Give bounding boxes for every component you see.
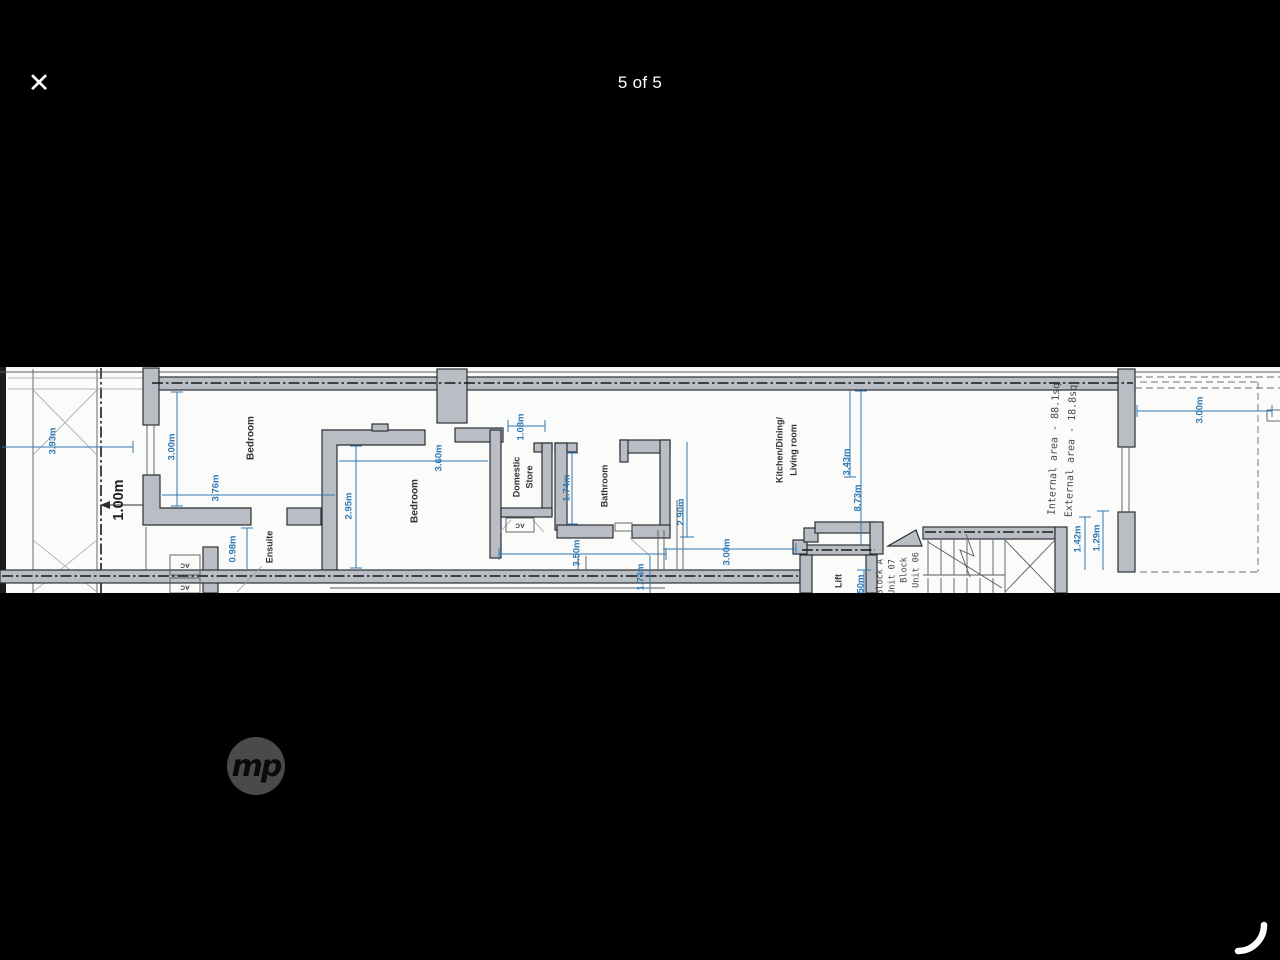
plan-paper bbox=[0, 367, 1280, 593]
dim-bed1-depth: 3.76m bbox=[211, 475, 222, 502]
floorplan-image[interactable]: AC AC AC bbox=[0, 367, 1280, 593]
dim-kitchen-depth: 3.43m bbox=[842, 449, 853, 476]
dim-kitchen-width: 2.90m bbox=[676, 499, 687, 526]
block-left-line1: Block A bbox=[876, 559, 886, 593]
dim-terrace: 3.00m bbox=[1195, 397, 1206, 424]
dim-lightwell: 3.93m bbox=[48, 428, 59, 455]
room-lift: Lift bbox=[833, 574, 843, 588]
dim-bed2-width: 2.95m bbox=[344, 493, 355, 520]
room-bedroom-mid: Bedroom bbox=[410, 479, 421, 523]
ac-label: AC bbox=[180, 583, 190, 590]
room-kitchen-line2: Living room bbox=[788, 424, 798, 476]
room-bedroom-left: Bedroom bbox=[246, 416, 257, 460]
dim-unit-length: 8.73m bbox=[853, 485, 864, 512]
dim-stair-b: 1.29m bbox=[1092, 525, 1103, 552]
corner-arc-icon[interactable] bbox=[1215, 898, 1275, 958]
room-store-line1: Domestic bbox=[511, 457, 521, 498]
dim-ensuite: 0.98m bbox=[228, 536, 239, 563]
ac-label: AC bbox=[515, 521, 525, 528]
dim-bath-width: 1.74m bbox=[562, 475, 573, 502]
photo-viewer: ✕ 5 of 5 bbox=[0, 0, 1280, 960]
dim-corridor: 1.73m bbox=[636, 564, 647, 591]
dim-bath-span: 3.50m bbox=[572, 540, 583, 567]
room-kitchen-line1: Kitchen/Dining/ bbox=[774, 417, 784, 483]
dim-lift: 1.50m bbox=[856, 575, 867, 593]
dim-offset: 1.00m bbox=[111, 479, 127, 520]
arc-stroke bbox=[1238, 925, 1264, 951]
dim-stair-a: 1.42m bbox=[1073, 526, 1084, 553]
room-bathroom: Bathroom bbox=[599, 465, 609, 508]
dim-bed1-width: 3.00m bbox=[167, 434, 178, 461]
watermark-logo: mp bbox=[227, 737, 285, 795]
ac-label: AC bbox=[180, 561, 190, 568]
room-store-line2: Store bbox=[524, 465, 534, 488]
plan-edge bbox=[0, 367, 6, 593]
block-left-line2: Unit 07 bbox=[888, 559, 898, 593]
photo-counter: 5 of 5 bbox=[0, 73, 1280, 93]
dim-store: 1.08m bbox=[516, 414, 527, 441]
block-right-line1: Block bbox=[900, 557, 910, 583]
dim-bed2-depth: 3.60m bbox=[434, 445, 445, 472]
room-ensuite: Ensuite bbox=[264, 531, 274, 564]
block-right-line2: Unit 06 bbox=[912, 552, 922, 588]
watermark-letters: mp bbox=[232, 749, 281, 784]
dim-kitchen-span: 3.00m bbox=[722, 539, 733, 566]
